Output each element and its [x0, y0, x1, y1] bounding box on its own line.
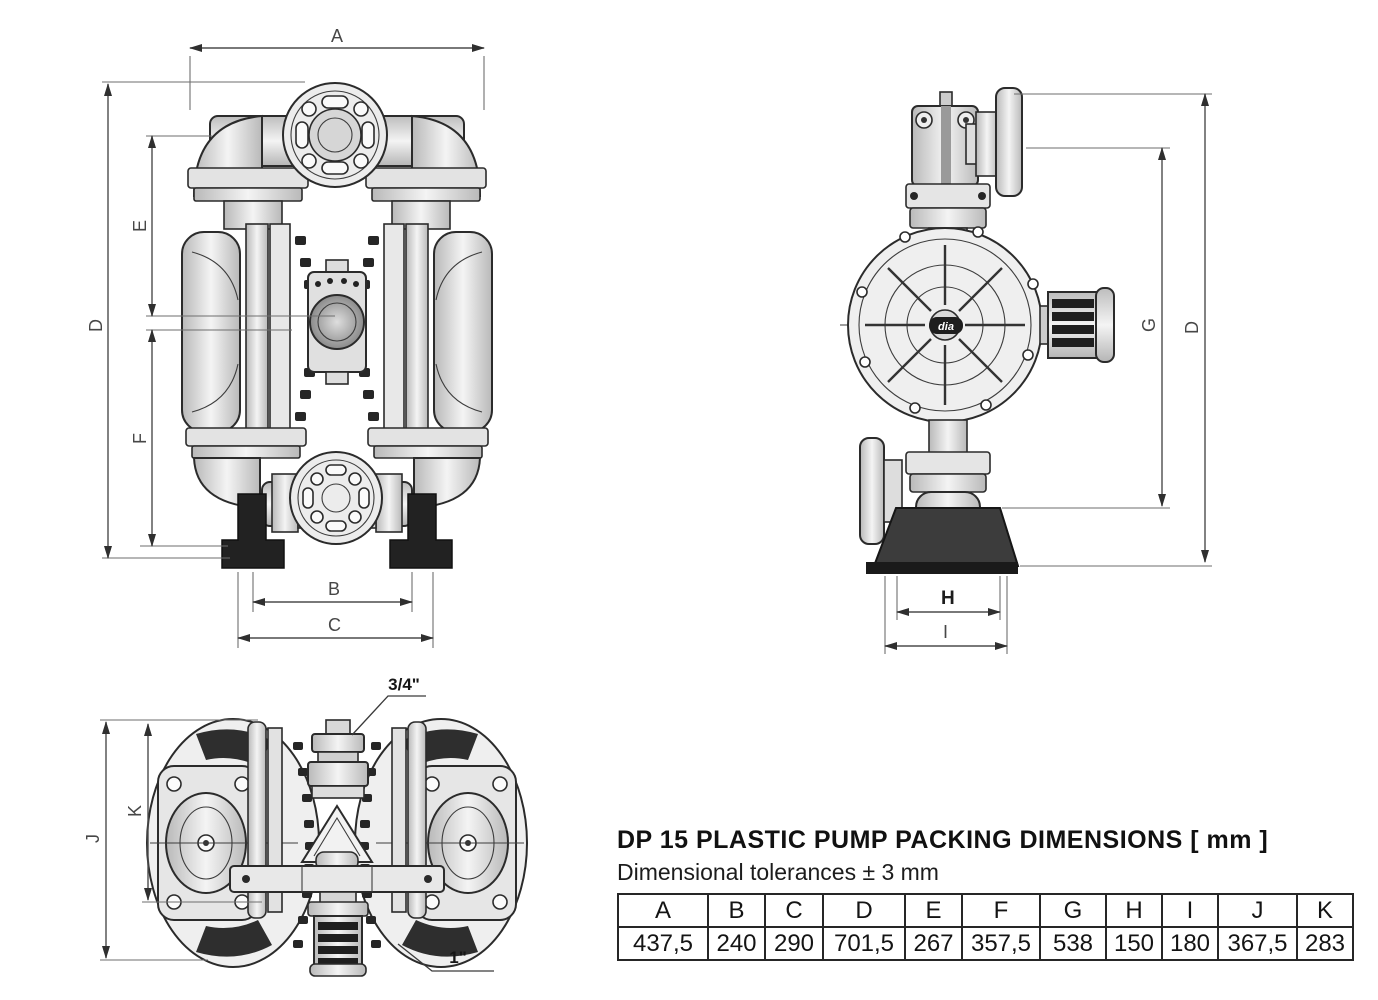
outlet-label: 1" — [449, 948, 467, 967]
dim-label-d-side: D — [1182, 321, 1202, 334]
top-outlet-muffler — [308, 902, 368, 976]
front-bottom-manifold — [186, 428, 488, 544]
front-top-flange — [283, 83, 387, 187]
header-cell: A — [618, 894, 708, 927]
value-cell: 357,5 — [962, 927, 1040, 960]
front-view: A D E F B C — [86, 26, 492, 648]
header-cell: B — [708, 894, 765, 927]
dim-label-e: E — [130, 220, 150, 232]
header-cell: H — [1106, 894, 1162, 927]
header-cell: K — [1297, 894, 1353, 927]
dimensions-table: A B C D E F G H I J K 437,5 240 290 701,… — [617, 893, 1354, 961]
side-discharge-flange — [996, 88, 1022, 196]
value-cell: 538 — [1040, 927, 1106, 960]
dim-label-d: D — [86, 319, 106, 332]
dimension-table-block: DP 15 PLASTIC PUMP PACKING DIMENSIONS [ … — [617, 826, 1362, 961]
dim-label-a: A — [331, 26, 343, 46]
value-cell: 437,5 — [618, 927, 708, 960]
dim-label-i: I — [943, 622, 948, 642]
header-cell: I — [1162, 894, 1218, 927]
header-cell: D — [823, 894, 905, 927]
table-value-row: 437,5 240 290 701,5 267 357,5 538 150 18… — [618, 927, 1353, 960]
brand-logo-text: dia — [938, 321, 954, 333]
value-cell: 290 — [765, 927, 823, 960]
header-cell: G — [1040, 894, 1106, 927]
dim-label-k: K — [125, 805, 145, 817]
value-cell: 701,5 — [823, 927, 905, 960]
value-cell: 180 — [1162, 927, 1218, 960]
side-suction-flange — [860, 438, 884, 544]
dim-label-h: H — [941, 588, 955, 609]
table-subtitle: Dimensional tolerances ± 3 mm — [617, 859, 1362, 886]
header-cell: J — [1218, 894, 1297, 927]
dim-label-c: C — [328, 615, 341, 635]
table-header-row: A B C D E F G H I J K — [618, 894, 1353, 927]
header-cell: F — [962, 894, 1040, 927]
front-center-body — [308, 260, 366, 384]
side-view: dia G — [840, 88, 1212, 654]
value-cell: 367,5 — [1218, 927, 1297, 960]
value-cell: 150 — [1106, 927, 1162, 960]
value-cell: 267 — [905, 927, 962, 960]
side-air-muffler — [1040, 288, 1114, 362]
foot-crossbar — [230, 866, 444, 892]
value-cell: 283 — [1297, 927, 1353, 960]
side-pump-body: dia — [840, 227, 1052, 422]
dim-label-g: G — [1139, 318, 1159, 332]
dim-label-b: B — [328, 579, 340, 599]
front-bottom-flange — [290, 452, 382, 544]
header-cell: C — [765, 894, 823, 927]
pump-packing-dimensions-sheet: A D E F B C — [0, 0, 1378, 1000]
value-cell: 240 — [708, 927, 765, 960]
air-inlet-label: 3/4" — [388, 675, 420, 694]
dim-label-f: F — [130, 433, 150, 444]
dim-label-j: J — [83, 834, 103, 843]
table-title: DP 15 PLASTIC PUMP PACKING DIMENSIONS [ … — [617, 826, 1362, 855]
side-bottom-assembly — [860, 420, 1018, 574]
air-inlet-port — [326, 720, 350, 734]
side-base — [874, 508, 1018, 566]
top-view: J K 3/4" 1" — [83, 675, 527, 976]
header-cell: E — [905, 894, 962, 927]
